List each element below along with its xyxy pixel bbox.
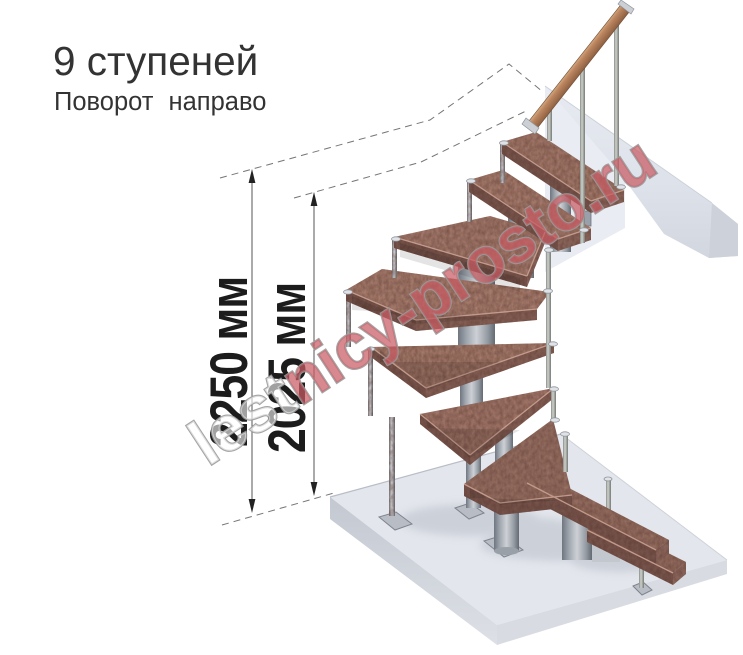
- svg-text:9 ступеней: 9 ступеней: [53, 38, 258, 84]
- svg-text:Поворот направо: Поворот направо: [54, 88, 266, 116]
